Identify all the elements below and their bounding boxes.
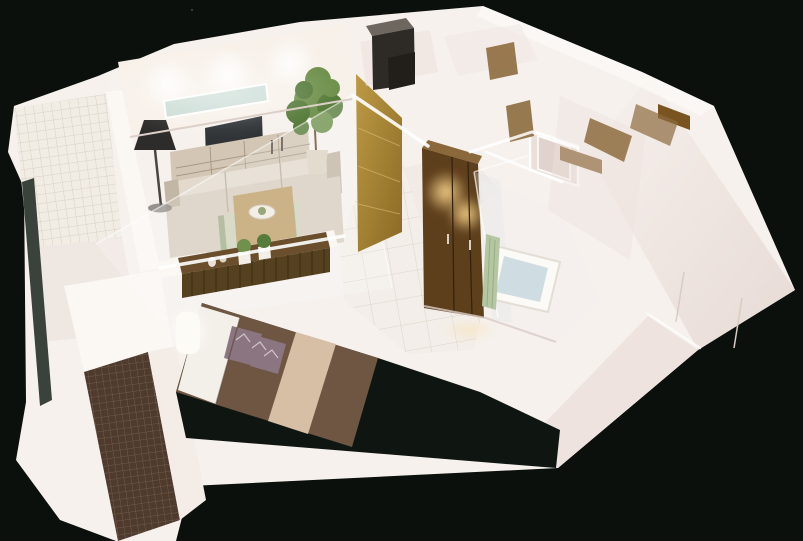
dust-speck [191, 9, 193, 11]
wardrobe-floor-glow [442, 320, 498, 340]
dark-cabinet-lower [388, 52, 415, 90]
apartment-3d-floorplan: 3D isometric cutaway render of a one-bed… [0, 0, 803, 541]
bedside-lamp [176, 312, 200, 354]
potted-plant-small [257, 234, 271, 248]
wood-floor-patch [486, 42, 518, 80]
apartment-render-stage: 3D isometric cutaway render of a one-bed… [0, 0, 803, 541]
room-light-wash [100, 54, 340, 130]
